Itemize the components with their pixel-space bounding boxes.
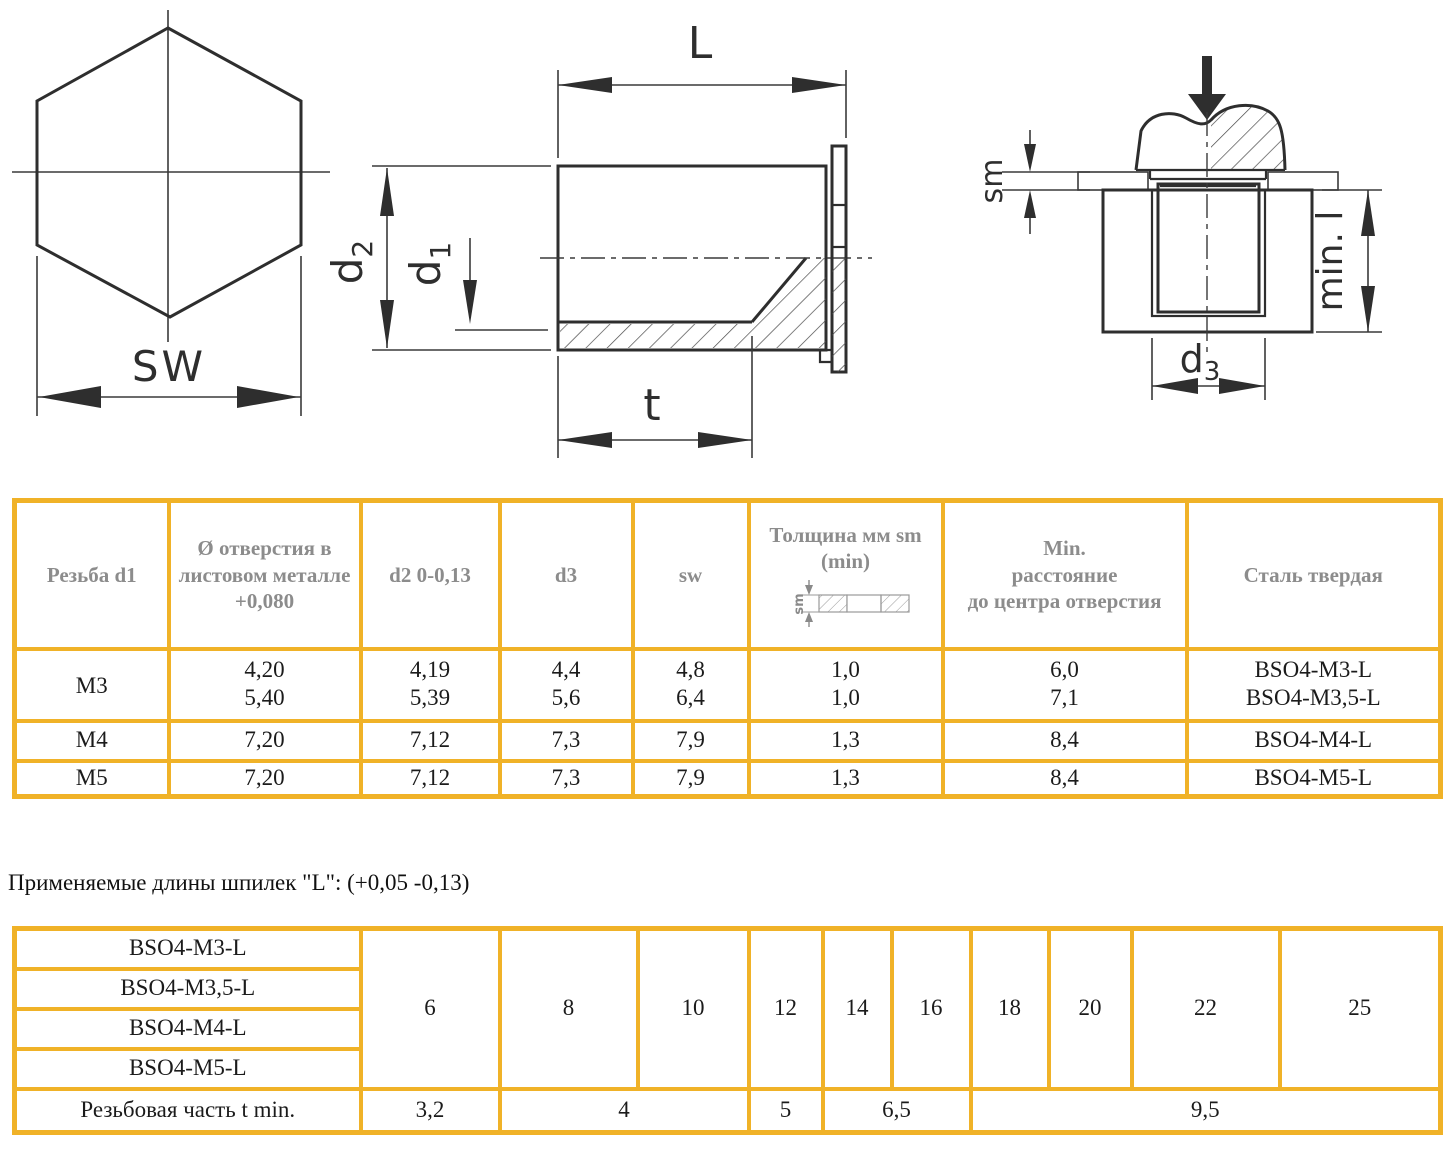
d1-arrow: [463, 280, 477, 324]
length-cell: 8: [500, 929, 638, 1089]
d3-arrow-right: [1219, 378, 1265, 394]
technical-drawings: SW L d2 d1: [0, 0, 1445, 478]
t-min-cell: 5: [749, 1089, 823, 1133]
hex-front-view: SW: [12, 10, 330, 416]
t-min-cell: 4: [500, 1089, 749, 1133]
thread-cell: M4: [15, 721, 169, 761]
d3-cell: 4,4 5,6: [500, 649, 633, 721]
min-dist-cell: 6,0 7,1: [943, 649, 1187, 721]
sm-cell: 1,0 1,0: [749, 649, 943, 721]
part-label-cell: BSO4-M4-L: [15, 1009, 361, 1049]
length-cell: 20: [1049, 929, 1132, 1089]
t-arrow-left: [558, 432, 612, 448]
col-header-min-distance: Min. расстояние до центра отверстия: [943, 501, 1187, 649]
length-cell: 10: [638, 929, 749, 1089]
t-dim-label: t: [643, 380, 660, 431]
sw-cell: 7,9: [633, 761, 749, 797]
l-arrow-right: [792, 77, 846, 93]
d3-dim-label: d3: [1180, 337, 1221, 387]
sw-arrow-left: [39, 386, 101, 408]
sw-dim-label: SW: [132, 342, 206, 391]
min-l-dim-label: min. l: [1310, 211, 1351, 312]
part-label-cell: BSO4-M3-L: [15, 929, 361, 969]
col-header-d3: d3: [500, 501, 633, 649]
sw-cell: 4,8 6,4: [633, 649, 749, 721]
spec-table: Резьба d1 Ø отверстия в листовом металле…: [12, 498, 1443, 799]
min-l-arrow-top: [1361, 190, 1375, 236]
sw-arrow-right: [237, 386, 299, 408]
sm-cell: 1,3: [749, 761, 943, 797]
thread-cell: M3: [15, 649, 169, 721]
length-cell: 25: [1280, 929, 1441, 1089]
length-cell: 12: [749, 929, 823, 1089]
t-min-cell: 9,5: [971, 1089, 1441, 1133]
part-number-cell: BSO4-M4-L: [1187, 721, 1441, 761]
t-arrow-right: [698, 432, 752, 448]
datasheet-page: { "drawings": { "hex_view": { "sw_label"…: [0, 0, 1445, 1167]
length-cell: 6: [361, 929, 500, 1089]
installed-section-view: sm min. l d3: [975, 56, 1382, 400]
hole-cell: 7,20: [169, 721, 361, 761]
col-header-sw: sw: [633, 501, 749, 649]
table-row-m4: M4 7,20 7,12 7,3 7,9 1,3 8,4 BSO4-M4-L: [15, 721, 1441, 761]
sm-arrow-top: [1024, 144, 1036, 172]
min-dist-cell: 8,4: [943, 721, 1187, 761]
d2-cell: 7,12: [361, 761, 500, 797]
t-min-cell: 3,2: [361, 1089, 500, 1133]
col-header-sheet-thickness: Толщина мм sm (min) sm: [749, 501, 943, 649]
d2-arrow-top: [380, 168, 394, 216]
length-row-m3: BSO4-M3-L 6 8 10 12 14 16 18 20 22 25: [15, 929, 1441, 969]
t-min-cell: 6,5: [823, 1089, 971, 1133]
side-section-view: L d2 d1 t: [323, 18, 872, 458]
d2-cell: 7,12: [361, 721, 500, 761]
sw-cell: 7,9: [633, 721, 749, 761]
spec-header-row: Резьба d1 Ø отверстия в листовом металле…: [15, 501, 1441, 649]
min-l-arrow-bottom: [1361, 286, 1375, 332]
table-row-m5: M5 7,20 7,12 7,3 7,9 1,3 8,4 BSO4-M5-L: [15, 761, 1441, 797]
d2-dim-label: d2: [323, 240, 379, 285]
d3-cell: 7,3: [500, 721, 633, 761]
length-cell: 14: [823, 929, 892, 1089]
thread-cell: M5: [15, 761, 169, 797]
thread-part-label-cell: Резьбовая часть t min.: [15, 1089, 361, 1133]
col-header-steel: Сталь твердая: [1187, 501, 1441, 649]
d3-cell: 7,3: [500, 761, 633, 797]
length-cell: 22: [1132, 929, 1280, 1089]
sm-sheet-diagram: sm: [771, 578, 921, 628]
l-dim-label: L: [688, 18, 713, 69]
length-table: BSO4-M3-L 6 8 10 12 14 16 18 20 22 25 BS…: [12, 926, 1443, 1135]
part-label-cell: BSO4-M3,5-L: [15, 969, 361, 1009]
sm-cell: 1,3: [749, 721, 943, 761]
min-dist-cell: 8,4: [943, 761, 1187, 797]
col-header-thread: Резьба d1: [15, 501, 169, 649]
table-row-m3: M3 4,20 5,40 4,19 5,39 4,4 5,6 4,8 6,4 1…: [15, 649, 1441, 721]
d1-dim-label: d1: [401, 242, 457, 287]
length-table-section: BSO4-M3-L 6 8 10 12 14 16 18 20 22 25 BS…: [12, 926, 1443, 1135]
col-header-hole-dia: Ø отверстия в листовом металле +0,080: [169, 501, 361, 649]
hole-cell: 4,20 5,40: [169, 649, 361, 721]
sm-arrow-bottom: [1024, 190, 1036, 218]
d2-cell: 4,19 5,39: [361, 649, 500, 721]
col-header-d2: d2 0-0,13: [361, 501, 500, 649]
spec-table-section: Резьба d1 Ø отверстия в листовом металле…: [12, 498, 1443, 799]
l-arrow-left: [558, 77, 612, 93]
lengths-note: Применяемые длины шпилек "L": (+0,05 -0,…: [8, 870, 469, 896]
hole-cell: 7,20: [169, 761, 361, 797]
length-cell: 18: [971, 929, 1049, 1089]
sm-dim-label: sm: [975, 159, 1010, 204]
length-cell: 16: [892, 929, 971, 1089]
sm-diagram-label: sm: [792, 593, 807, 614]
d2-arrow-bottom: [380, 300, 394, 348]
thread-part-row: Резьбовая часть t min. 3,2 4 5 6,5 9,5: [15, 1089, 1441, 1133]
part-label-cell: BSO4-M5-L: [15, 1049, 361, 1089]
part-number-cell: BSO4-M3-L BSO4-M3,5-L: [1187, 649, 1441, 721]
part-number-cell: BSO4-M5-L: [1187, 761, 1441, 797]
